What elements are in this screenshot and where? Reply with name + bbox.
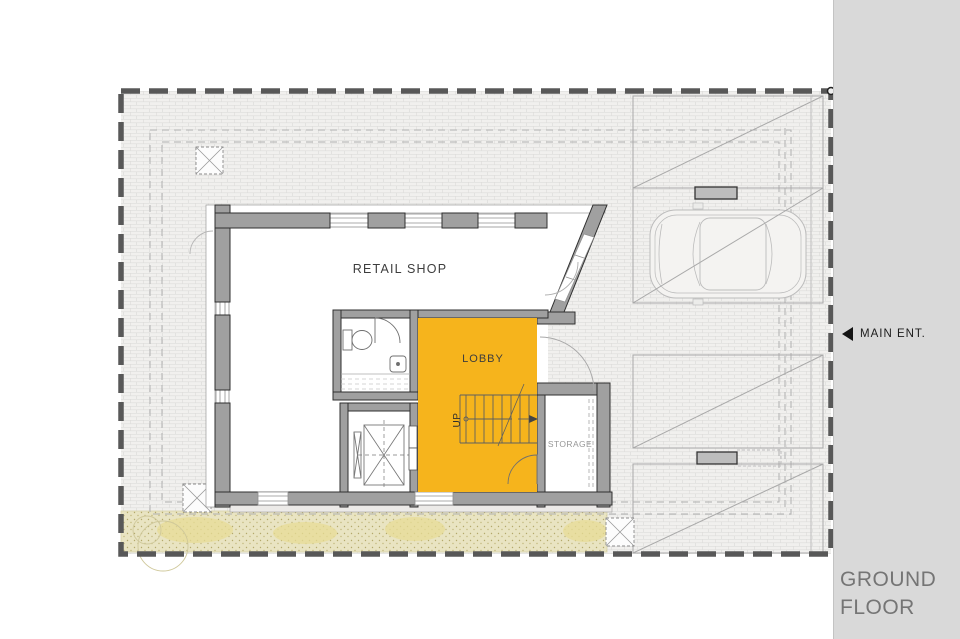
lobby-label: LOBBY (462, 353, 504, 365)
floor-plan-page: RETAIL SHOP LOBBY STORAGE UP MAIN ENT. G… (0, 0, 960, 639)
landscape-band (121, 511, 607, 571)
storage-label: STORAGE (548, 439, 592, 449)
main-entrance-arrow-icon (842, 327, 853, 341)
sink-symbol (390, 356, 406, 372)
parked-car (650, 203, 806, 305)
sidebar-panel (833, 0, 960, 639)
wheel-stop (697, 452, 737, 464)
retail-shop-label: RETAIL SHOP (353, 262, 447, 276)
floor-title: GROUND FLOOR (840, 566, 936, 621)
floor-plan-canvas: RETAIL SHOP LOBBY STORAGE UP (0, 0, 960, 639)
floor-title-line2: FLOOR (840, 594, 936, 622)
marker-square (196, 147, 223, 174)
floor-title-line1: GROUND (840, 566, 936, 594)
lobby-area (418, 318, 537, 492)
main-entrance-callout: MAIN ENT. (842, 327, 926, 341)
main-entrance-label: MAIN ENT. (860, 328, 926, 340)
wheel-stop (695, 187, 737, 199)
toilet-symbol (343, 330, 372, 350)
stairs-up-label: UP (452, 413, 463, 428)
marker-square (606, 518, 634, 546)
